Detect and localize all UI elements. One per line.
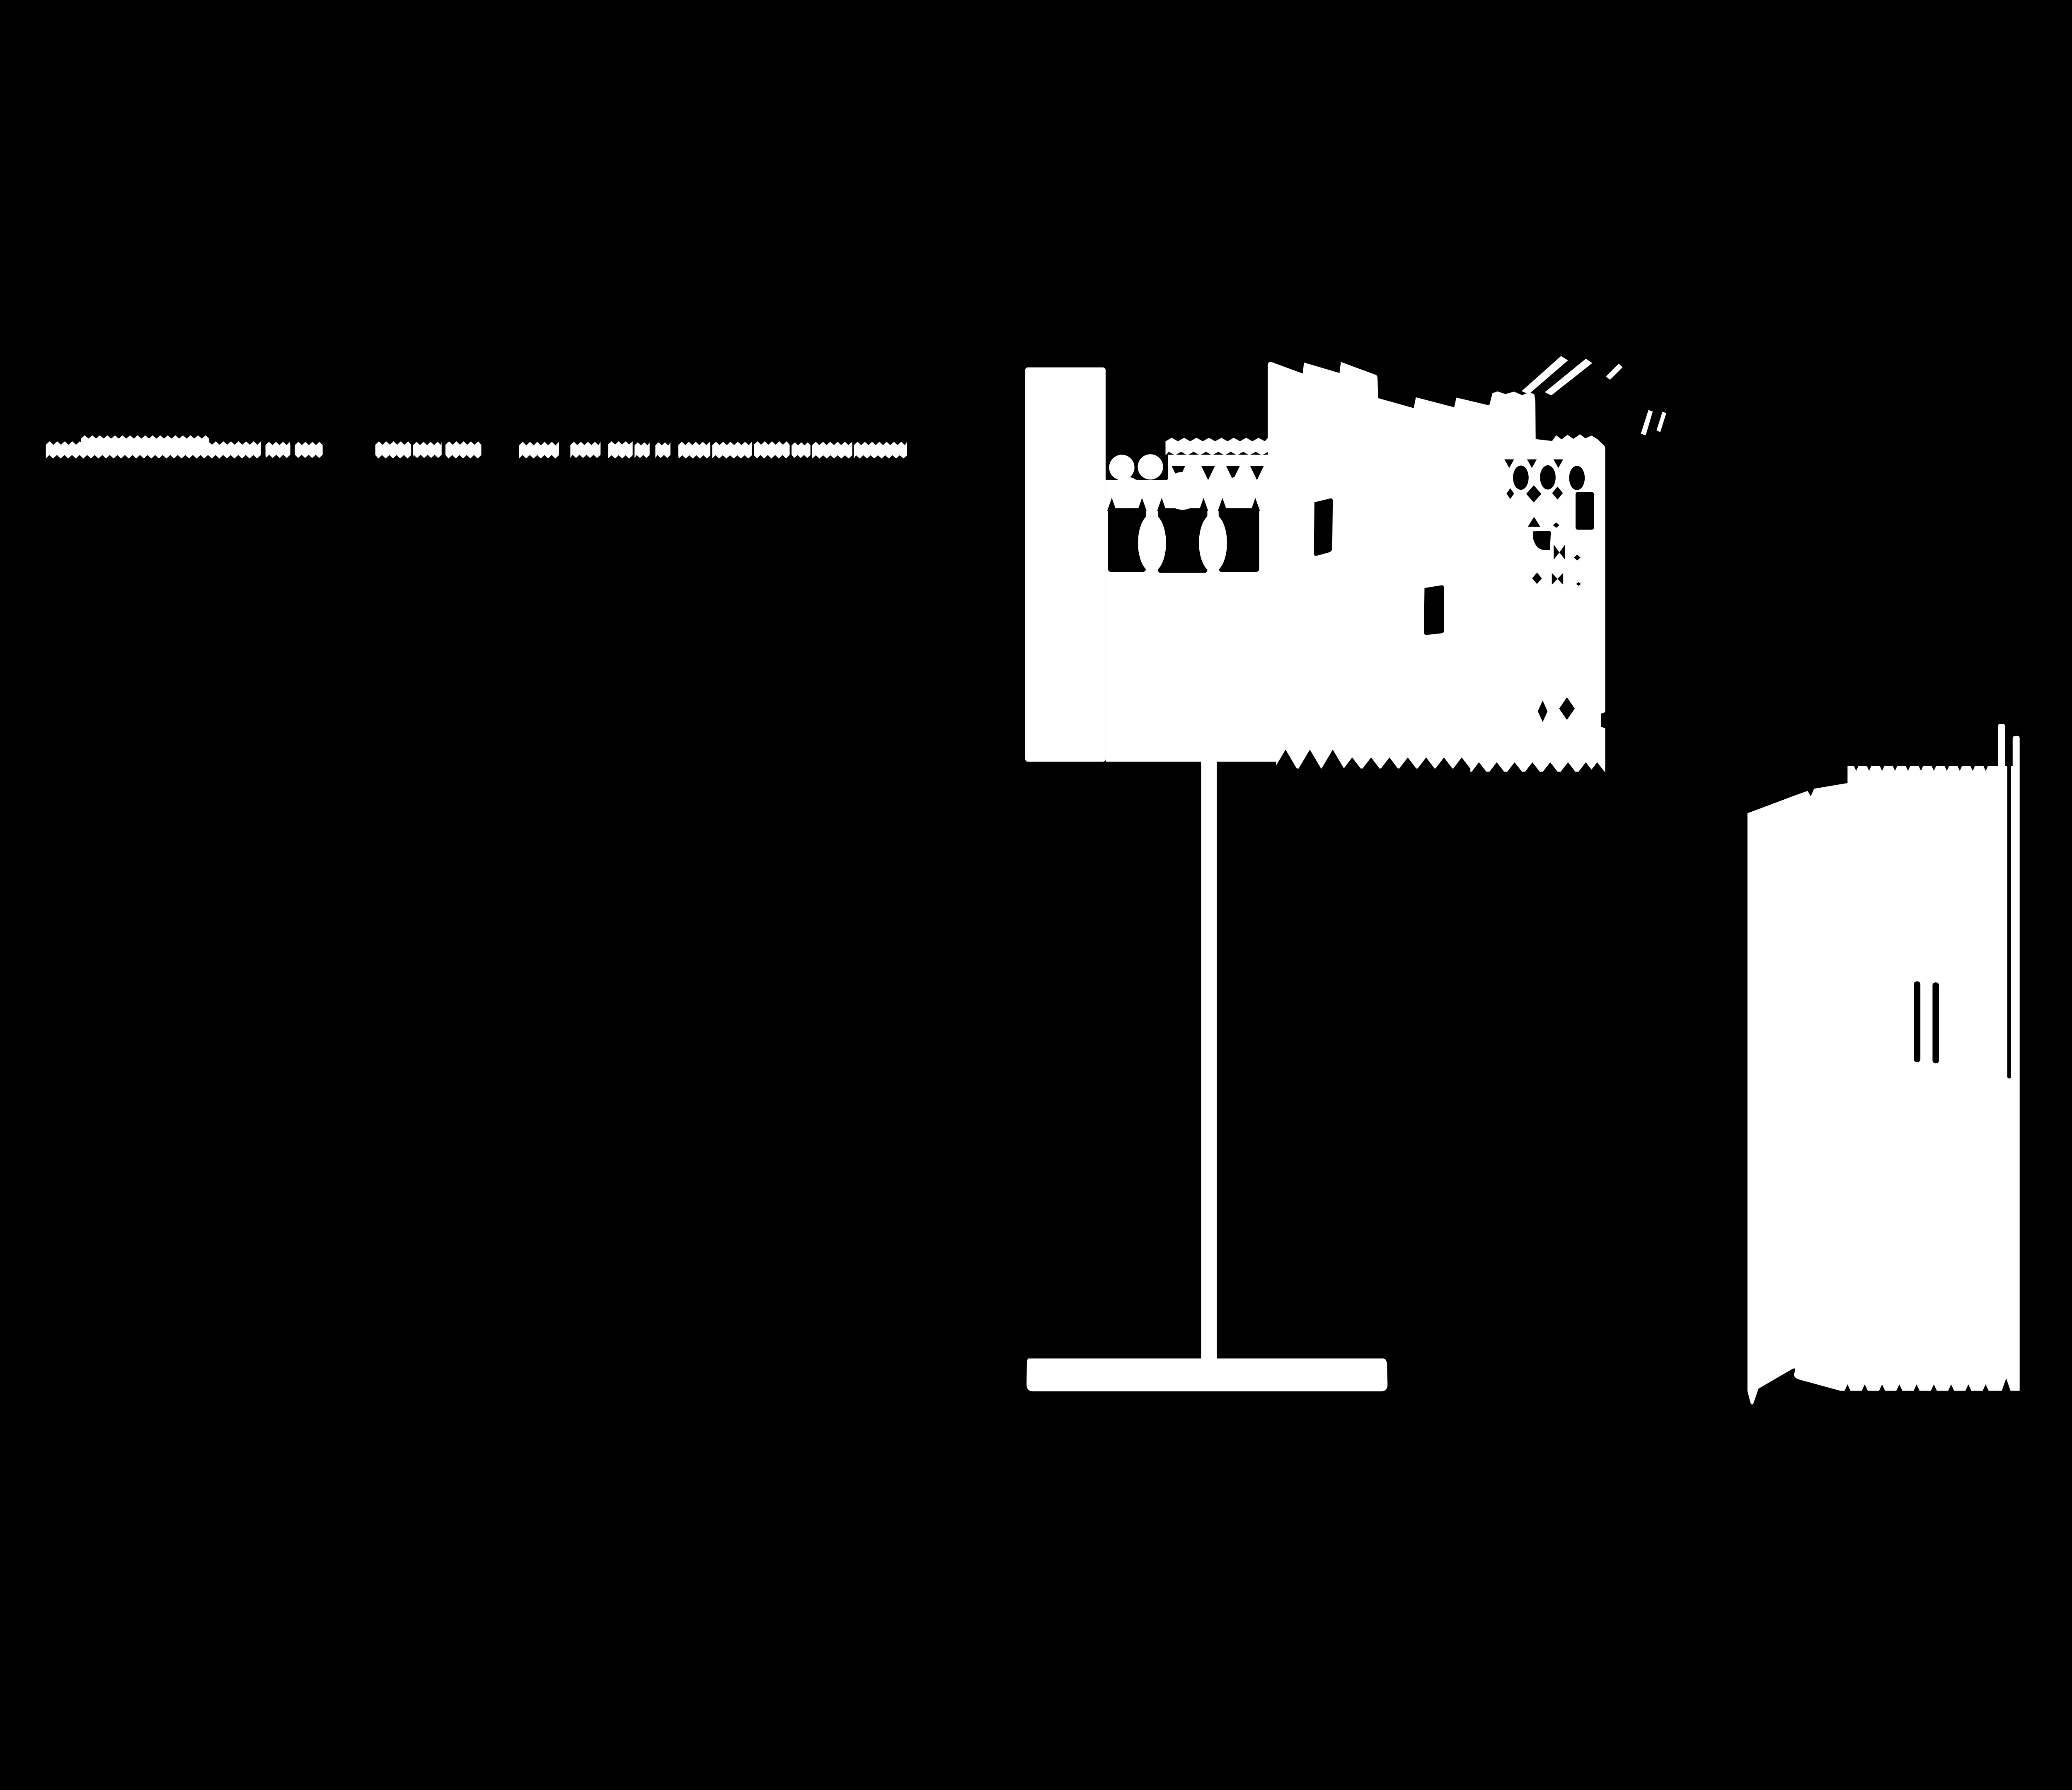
lattice-ellipse-cutout: [1540, 465, 1556, 490]
caption-blob: [678, 442, 710, 458]
cabinet-body: [1748, 724, 2020, 1405]
caption-blob: [792, 443, 811, 458]
window-cutout-left: [1314, 498, 1333, 556]
scene: [0, 0, 2072, 1790]
lattice-ellipse-cutout: [1569, 466, 1585, 490]
lamp-scallop-circle: [1109, 455, 1134, 480]
window-cutout-middle: [1424, 585, 1444, 635]
lamp-main-mass: [1268, 362, 1605, 772]
baluster-column: [1199, 514, 1227, 572]
lamp-scallop-circle: [1138, 454, 1163, 479]
caption-blob: [634, 443, 649, 458]
caption-blob: [81, 435, 209, 448]
lamp-diagonal-streak: [1522, 356, 1568, 394]
baluster-top-curve: [1111, 477, 1143, 508]
lamp-edge-dash: [1641, 410, 1653, 435]
lamp-pole: [1201, 761, 1217, 1358]
cabinet-door-gap: [2007, 744, 2011, 1078]
caption-blob: [445, 441, 482, 459]
lamp-diagonal-streak: [1606, 363, 1622, 380]
caption-blob: [375, 441, 411, 459]
caption-blob: [266, 442, 290, 458]
cabinet-handle-left: [1914, 981, 1920, 1062]
scene-canvas: [0, 0, 2072, 1790]
baluster-top-curve: [1164, 472, 1201, 510]
lamp-entablature-strip: [1166, 438, 1268, 455]
caption-blob: [295, 442, 323, 458]
caption-blob: [854, 442, 907, 458]
window-cutout-right: [1576, 492, 1594, 530]
cabinet-handle-right: [1932, 982, 1939, 1063]
baluster-top-curve: [1223, 477, 1255, 508]
caption-blob: [655, 443, 670, 458]
group-caption: [46, 435, 907, 459]
baluster-column: [1138, 514, 1166, 572]
caption-blob: [519, 442, 559, 458]
caption-blob: [712, 442, 752, 458]
caption-blob: [413, 442, 442, 458]
caption-blob: [754, 441, 790, 459]
caption-blob: [812, 442, 852, 458]
caption-blob: [608, 441, 632, 459]
lamp-edge-dash: [1656, 411, 1666, 432]
lamp-left-tower: [1025, 368, 1106, 762]
lamp-base: [1026, 1358, 1387, 1391]
caption-blob: [570, 442, 600, 458]
lattice-ellipse-cutout: [1513, 466, 1529, 490]
group-cabinet: [1748, 724, 2020, 1405]
group-lamp: [1025, 356, 1666, 1391]
